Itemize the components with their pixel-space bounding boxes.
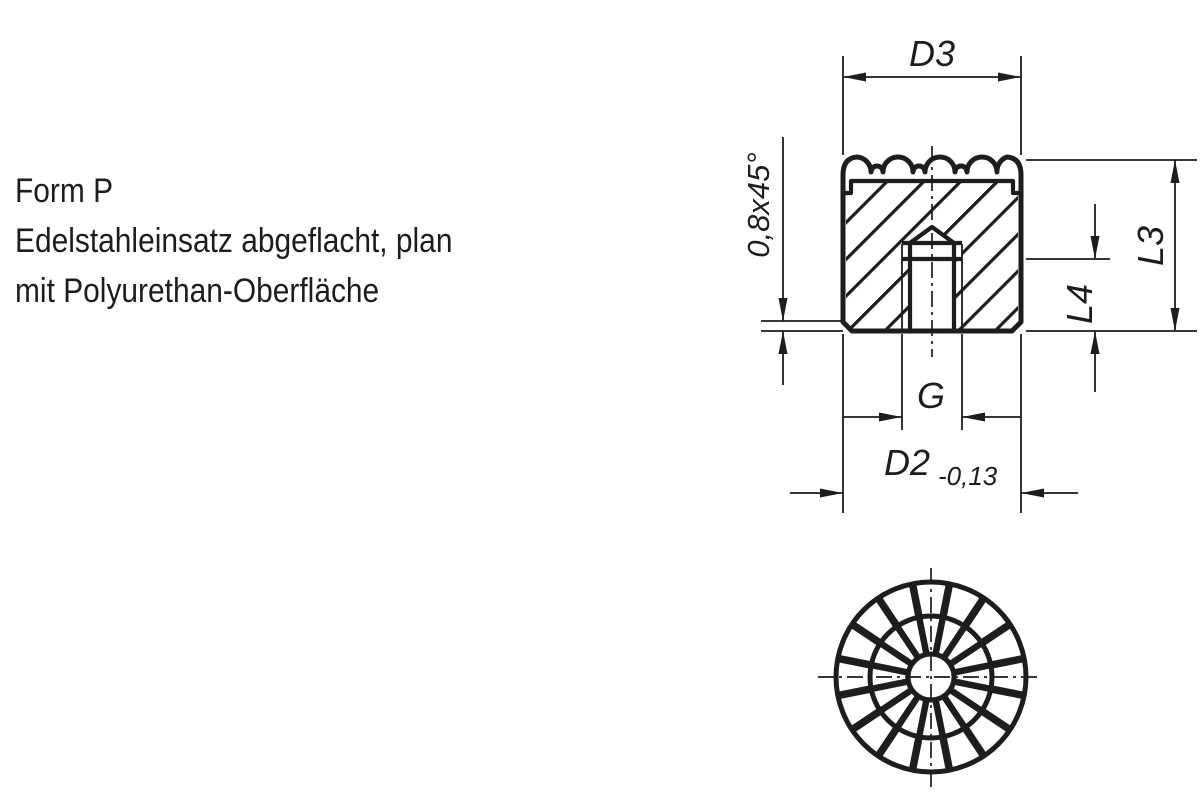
dimension-l3: L3 bbox=[1026, 160, 1197, 331]
g-label: G bbox=[917, 375, 945, 416]
arrowhead bbox=[779, 298, 788, 321]
arrowhead bbox=[1091, 236, 1100, 259]
knurl-spoke bbox=[991, 689, 1024, 696]
knurl-spoke bbox=[954, 665, 991, 672]
arrowhead bbox=[843, 73, 866, 82]
chamfer-label: 0,8x45° bbox=[741, 152, 776, 257]
arrowhead bbox=[1171, 160, 1180, 183]
knurl-spoke bbox=[965, 728, 984, 756]
knurl-spoke bbox=[982, 624, 1010, 643]
arrowhead bbox=[1091, 331, 1100, 354]
knurl-spoke bbox=[943, 584, 950, 617]
l4-label: L4 bbox=[1059, 284, 1100, 324]
knurl-spoke bbox=[912, 737, 919, 770]
knurl-spoke bbox=[935, 617, 942, 654]
knurl-spoke bbox=[871, 681, 908, 688]
dimension-chamfer: 0,8x45° bbox=[741, 137, 843, 385]
arrowhead bbox=[779, 331, 788, 354]
knurl-spoke bbox=[838, 689, 871, 696]
knurl-spoke bbox=[852, 711, 880, 730]
dimension-d2: D2 -0,13 bbox=[790, 334, 1078, 513]
dimension-g: G bbox=[843, 334, 1021, 430]
knurl-spoke bbox=[912, 584, 919, 617]
bottom-view bbox=[818, 568, 1042, 787]
knurl-spoke bbox=[991, 658, 1024, 665]
d2-tolerance-label: -0,13 bbox=[938, 461, 998, 491]
knurl-spoke bbox=[954, 681, 991, 688]
arrowhead bbox=[1171, 308, 1180, 331]
knurl-spoke bbox=[943, 737, 950, 770]
d3-label: D3 bbox=[909, 33, 955, 74]
arrowhead bbox=[820, 489, 843, 498]
arrowhead bbox=[1021, 489, 1044, 498]
section-view bbox=[843, 146, 1021, 357]
d2-label: D2 bbox=[884, 442, 930, 483]
knurl-spoke bbox=[852, 624, 880, 643]
knurl-spoke bbox=[935, 700, 942, 737]
dimension-l4: L4 bbox=[1026, 204, 1110, 392]
knurl-spoke bbox=[982, 711, 1010, 730]
arrowhead bbox=[962, 413, 985, 422]
knurl-spoke bbox=[919, 617, 926, 654]
knurl-spoke bbox=[871, 665, 908, 672]
knurl-spoke bbox=[965, 598, 984, 626]
drawing-page: Form P Edelstahleinsatz abgeflacht, plan… bbox=[0, 0, 1200, 795]
arrowhead bbox=[998, 73, 1021, 82]
knurl-spoke bbox=[838, 658, 871, 665]
knurl-spoke bbox=[878, 728, 897, 756]
l3-label: L3 bbox=[1130, 226, 1171, 266]
arrowhead bbox=[879, 413, 902, 422]
knurl-spoke bbox=[919, 700, 926, 737]
technical-drawing-svg: D3 L3 L4 0,8x45° bbox=[0, 0, 1200, 795]
dimension-d3: D3 bbox=[843, 33, 1021, 155]
knurl-spoke bbox=[878, 598, 897, 626]
